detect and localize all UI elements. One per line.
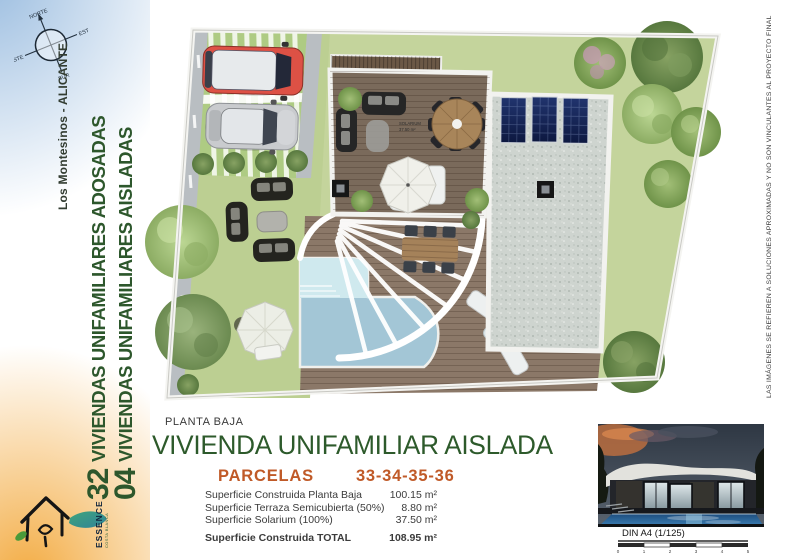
- surface-label: Superficie Construida TOTAL: [205, 532, 351, 545]
- surface-table: Superficie Construida Planta Baja 100.15…: [205, 489, 437, 544]
- terrace-dining-set: [401, 225, 459, 274]
- tree: [155, 294, 231, 370]
- tree: [603, 331, 665, 393]
- surface-value: 100.15 m²: [390, 489, 437, 502]
- skylight: [332, 180, 349, 197]
- tree: [574, 37, 626, 89]
- car-red: [202, 40, 305, 102]
- floor-label: PLANTA BAJA: [165, 416, 244, 428]
- tree: [351, 190, 373, 212]
- tree: [338, 87, 362, 111]
- site-plan: SOLARIUM 37.50 m²: [0, 0, 797, 415]
- house-render-photo: [598, 424, 764, 527]
- car-silver: [204, 98, 298, 155]
- scale-label: DIN A4 (1/125): [622, 528, 756, 539]
- svg-text:3: 3: [695, 549, 698, 554]
- solarium-sofa-left: [336, 108, 357, 152]
- parcels-line: PARCELAS 33-34-35-36: [218, 467, 455, 486]
- scale-ruler: 0 1 2 3 4 5: [616, 540, 756, 554]
- table-row-total: Superficie Construida TOTAL 108.95 m²: [205, 532, 437, 545]
- table-row: Superficie Solarium (100%) 37.50 m²: [205, 514, 437, 527]
- solarium-sofa-top: [362, 92, 406, 116]
- svg-text:5: 5: [747, 549, 750, 554]
- solar-panels: [501, 97, 588, 144]
- parcels-numbers: 33-34-35-36: [356, 467, 455, 486]
- svg-text:0: 0: [617, 549, 620, 554]
- plan-sheet: NORTE ESTE SUR OESTE Los Montesinos - AL…: [0, 0, 797, 560]
- solarium-rug: [366, 120, 389, 152]
- bush: [462, 211, 480, 229]
- bush: [177, 374, 199, 396]
- disclaimer-text: LAS IMÁGENES SE REFIEREN A SOLUCIONES AP…: [766, 10, 773, 398]
- surface-value: 8.80 m²: [401, 502, 437, 515]
- page-title: VIVIENDA UNIFAMILIAR AISLADA: [152, 430, 553, 461]
- surface-label: Superficie Solarium (100%): [205, 514, 333, 527]
- skylight: [537, 181, 554, 198]
- surface-value: 37.50 m²: [396, 514, 437, 527]
- brand-name: ESSENCE: [94, 494, 104, 548]
- tree: [631, 21, 703, 93]
- solarium-dining-table: [428, 97, 485, 151]
- tree: [644, 160, 692, 208]
- brand-tagline: COSTA BLANCA: [104, 494, 109, 548]
- scale-bar: DIN A4 (1/125) 0 1 2 3 4 5: [616, 528, 756, 559]
- surface-label: Superficie Construida Planta Baja: [205, 489, 362, 502]
- svg-text:1: 1: [643, 549, 646, 554]
- project-count: 04: [109, 469, 142, 500]
- svg-text:2: 2: [669, 549, 672, 554]
- svg-text:4: 4: [721, 549, 724, 554]
- surface-label: Superficie Terraza Semicubierta (50%): [205, 502, 385, 515]
- surface-value: 108.95 m²: [389, 532, 437, 545]
- gravel-roof: [488, 94, 611, 351]
- table-row: Superficie Terraza Semicubierta (50%) 8.…: [205, 502, 437, 515]
- table-row: Superficie Construida Planta Baja 100.15…: [205, 489, 437, 502]
- tree: [465, 188, 489, 212]
- parcels-label: PARCELAS: [218, 467, 314, 486]
